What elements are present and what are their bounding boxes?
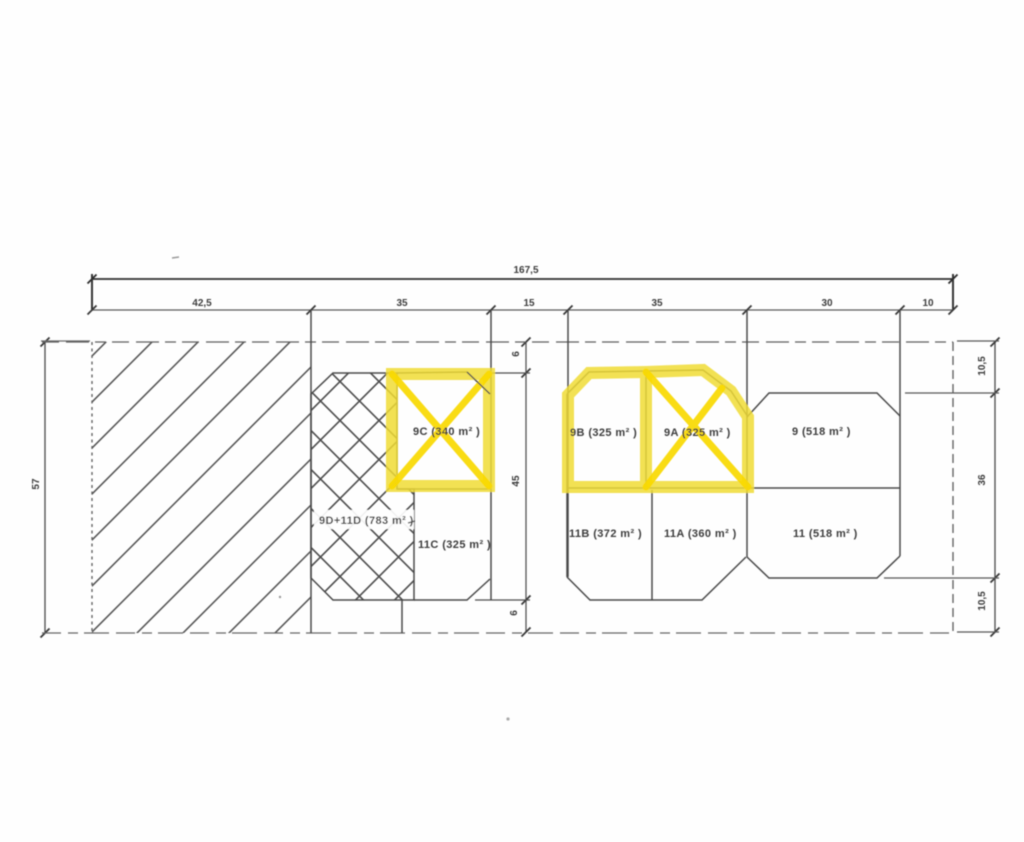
svg-text:10,5: 10,5 [977, 356, 988, 376]
svg-text:36: 36 [977, 474, 988, 486]
svg-text:9A (325 m² ): 9A (325 m² ) [664, 427, 731, 439]
svg-text:57: 57 [31, 478, 42, 490]
svg-text:30: 30 [821, 298, 833, 309]
svg-text:42,5: 42,5 [192, 298, 212, 309]
svg-text:6: 6 [511, 351, 522, 357]
svg-text:11B (372 m² ): 11B (372 m² ) [569, 528, 642, 540]
svg-text:10: 10 [922, 298, 934, 309]
svg-text:9D+11D (783 m² ): 9D+11D (783 m² ) [319, 515, 414, 527]
svg-text:6: 6 [509, 610, 520, 616]
svg-text:9B (325 m² ): 9B (325 m² ) [570, 427, 637, 439]
svg-text:35: 35 [396, 298, 408, 309]
svg-text:15: 15 [523, 298, 535, 309]
svg-text:11C (325 m² ): 11C (325 m² ) [418, 539, 491, 551]
svg-text:10,5: 10,5 [977, 591, 988, 611]
svg-text:45: 45 [511, 475, 522, 487]
svg-text:35: 35 [651, 298, 663, 309]
svg-text:9 (518 m² ): 9 (518 m² ) [792, 426, 851, 438]
svg-text:11A (360 m² ): 11A (360 m² ) [664, 528, 737, 540]
svg-text:9C (340 m² ): 9C (340 m² ) [413, 426, 480, 438]
svg-text:11 (518 m² ): 11 (518 m² ) [793, 528, 858, 540]
svg-text:167,5: 167,5 [513, 265, 538, 276]
